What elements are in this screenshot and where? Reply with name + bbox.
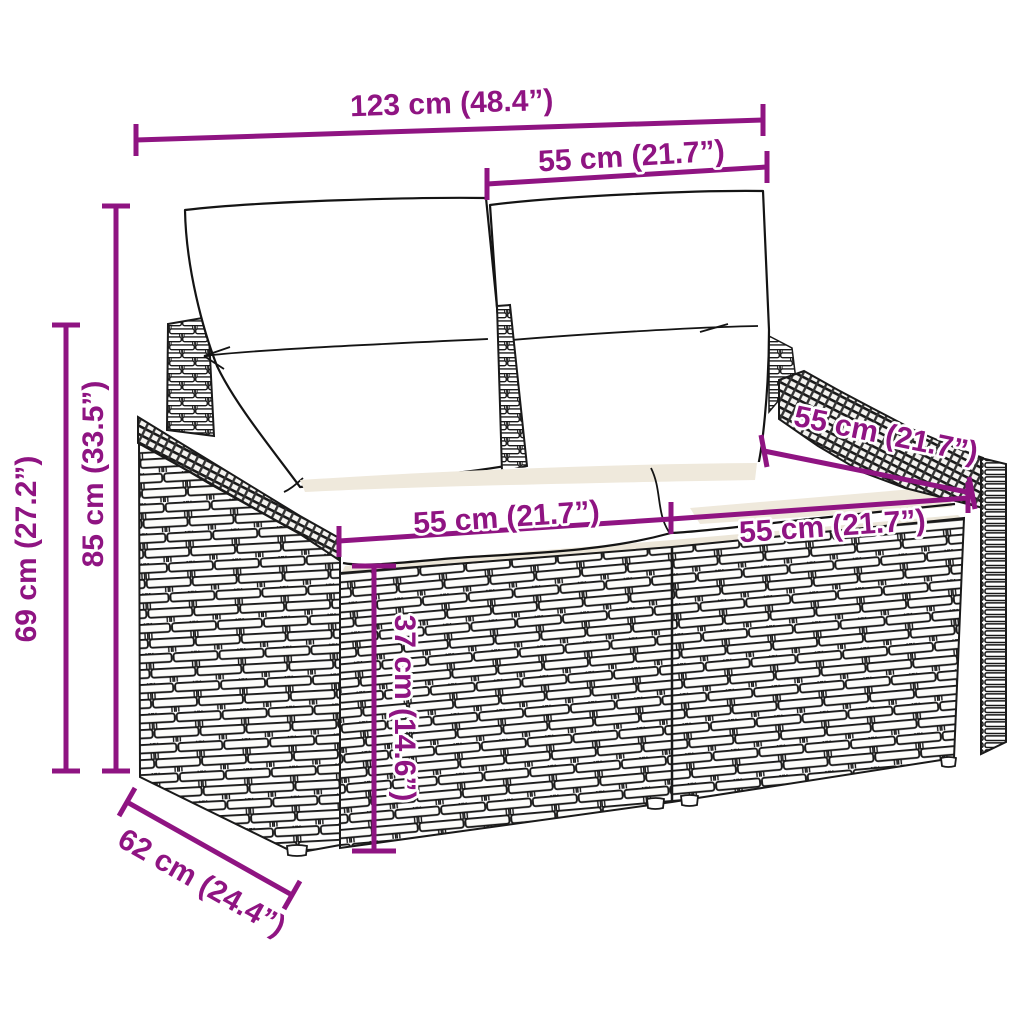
svg-text:123 cm (48.4”): 123 cm (48.4”) [350, 84, 554, 123]
svg-text:37 cm (14.6”): 37 cm (14.6”) [388, 615, 421, 802]
svg-text:69 cm (27.2”): 69 cm (27.2”) [10, 456, 43, 643]
svg-text:85 cm (33.5”): 85 cm (33.5”) [77, 381, 110, 568]
